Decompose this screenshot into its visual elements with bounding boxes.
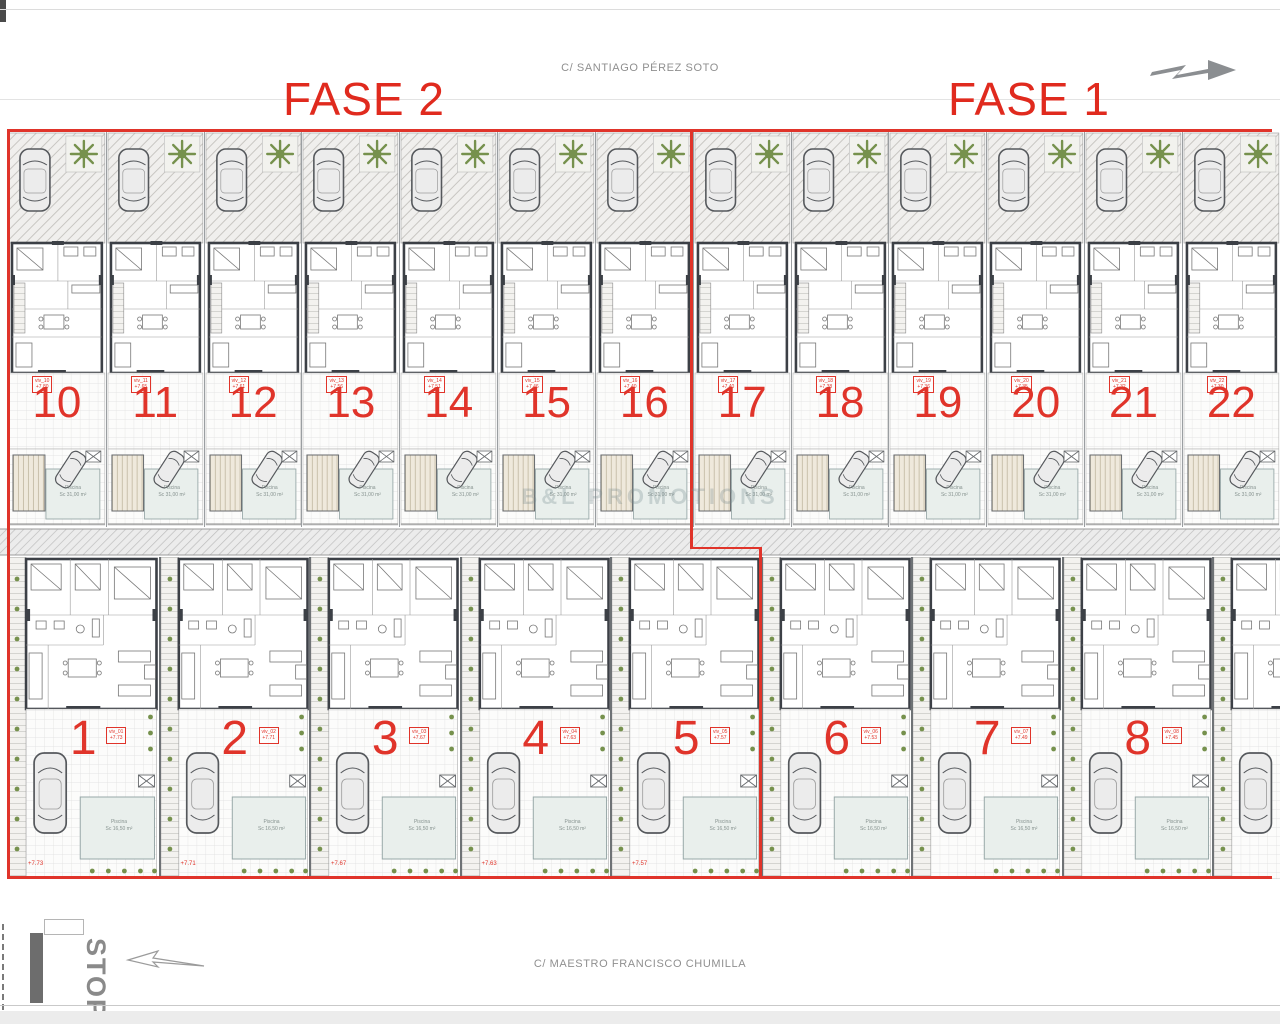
pergola-symbol-icon — [282, 451, 297, 462]
plot-number: 21 — [1085, 381, 1182, 425]
car-icon — [803, 149, 833, 211]
plot-unit-top: viv_10 +7.80 10 Piscina Sc 31,00 m² — [8, 131, 106, 527]
unit-tag-box: viv_04 +7.63 — [560, 727, 580, 744]
unit-floorplan-drawing — [8, 131, 106, 527]
pool-area: Sc 16,50 m² — [385, 826, 459, 833]
plot-unit-bottom: 5 viv_05 +7.57 Piscina Sc 16,50 m² +7.57 — [610, 557, 761, 879]
plot-unit-bottom: 1 viv_01 +7.73 Piscina Sc 16,50 m² +7.73 — [8, 557, 159, 879]
tree-icon — [71, 141, 97, 167]
pergola-symbol-icon — [673, 451, 688, 462]
road-dashed-line — [2, 924, 4, 1010]
pergola-symbol-icon — [1064, 451, 1079, 462]
plot-unit-top: viv_18 +7.38 18 Piscina Sc 31,00 m² — [791, 131, 889, 527]
car-icon — [314, 149, 344, 211]
pool-area: Sc 31,00 m² — [929, 492, 979, 499]
elevation-mark: +7.71 — [181, 861, 196, 867]
plot-number: 22 — [1183, 381, 1280, 425]
tree-icon — [169, 141, 195, 167]
plot-unit-bottom: 7 viv_07 +7.49 Piscina Sc 16,50 m² — [911, 557, 1062, 879]
unit-tag-box: viv_03 +7.67 — [409, 727, 429, 744]
plot-unit-bottom: 6 viv_06 +7.53 Piscina Sc 16,50 m² — [761, 557, 912, 879]
plot-unit-top: viv_17 +7.40 17 Piscina Sc 31,00 m² — [693, 131, 791, 527]
pergola-symbol-icon — [86, 451, 101, 462]
pool-label: Piscina Sc 16,50 m² — [536, 819, 610, 832]
car-icon — [939, 753, 971, 833]
plot-unit-top: viv_15 +7.46 15 Piscina Sc 31,00 m² — [497, 131, 595, 527]
unit-level: +7.73 — [109, 735, 123, 741]
car-icon — [638, 753, 670, 833]
plot-number: 17 — [694, 381, 791, 425]
plot-unit-top: viv_13 +7.56 13 Piscina Sc 31,00 m² — [301, 131, 399, 527]
unit-level: +7.71 — [262, 735, 276, 741]
plot-number: 12 — [205, 381, 302, 425]
plot-unit-bottom: 3 viv_03 +7.67 Piscina Sc 16,50 m² +7.67 — [309, 557, 460, 879]
bottom-margin-band — [0, 1011, 1280, 1024]
pergola-symbol-icon — [138, 775, 154, 787]
pergola-symbol-icon — [741, 775, 757, 787]
pergola — [13, 455, 45, 511]
unit-floorplan-drawing — [498, 131, 595, 527]
pool-label: Piscina Sc 16,50 m² — [82, 819, 156, 832]
unit-level: +7.67 — [412, 735, 426, 741]
pergola — [112, 455, 144, 511]
plot-number: 8 — [1064, 715, 1213, 763]
tree-icon — [365, 141, 391, 167]
unit-floorplan-drawing — [302, 131, 399, 527]
pool-area: Sc 31,00 m² — [245, 492, 295, 499]
phase-boundary-top — [8, 129, 1272, 132]
top-plot-row: viv_10 +7.80 10 Piscina Sc 31,00 m² — [8, 131, 1280, 527]
house-floorplan — [329, 559, 458, 710]
tree-icon — [1050, 141, 1076, 167]
plot-number: 20 — [987, 381, 1084, 425]
unit-tag-box: viv_01 +7.73 — [106, 727, 126, 744]
pool-label: Piscina Sc 31,00 m² — [929, 485, 979, 498]
house-floorplan — [479, 559, 608, 710]
pergola — [894, 455, 926, 511]
car-icon — [217, 149, 247, 211]
plot-unit-bottom: 8 viv_08 +7.45 Piscina Sc 16,50 m² — [1062, 557, 1213, 879]
house-floorplan — [630, 559, 759, 710]
pergola-symbol-icon — [1042, 775, 1058, 787]
pool-area: Sc 31,00 m² — [48, 492, 98, 499]
phase-boundary-left — [7, 129, 10, 879]
pool-label: Piscina Sc 31,00 m² — [1125, 485, 1175, 498]
unit-level: +7.57 — [713, 735, 727, 741]
stop-road-marking: STOP — [80, 938, 111, 1019]
phase-divider-jog — [690, 547, 762, 549]
unit-level: +7.49 — [1014, 735, 1028, 741]
pergola — [405, 455, 437, 511]
tree-icon — [1245, 141, 1271, 167]
unit-level: +7.45 — [1165, 735, 1179, 741]
curb-box — [44, 919, 84, 935]
unit-floorplan-drawing — [1085, 131, 1182, 527]
plot-unit-top: viv_21 +7.32 21 Piscina Sc 31,00 m² — [1084, 131, 1182, 527]
pergola-symbol-icon — [967, 451, 982, 462]
car-icon — [901, 149, 931, 211]
pergola-symbol-icon — [477, 451, 492, 462]
phase-divider-lower — [759, 547, 762, 879]
plot-number: 18 — [792, 381, 889, 425]
unit-floorplan-drawing — [400, 131, 497, 527]
pool-area: Sc 16,50 m² — [235, 826, 309, 833]
plot-unit-top: viv_14 +7.51 14 Piscina Sc 31,00 m² — [399, 131, 497, 527]
elevation-mark: +7.73 — [28, 861, 43, 867]
unit-tag-box: viv_08 +7.45 — [1162, 727, 1182, 744]
house-floorplan — [893, 241, 982, 374]
unit-tag-box: viv_02 +7.71 — [259, 727, 279, 744]
car-icon — [608, 149, 638, 211]
tree-icon — [1147, 141, 1173, 167]
unit-level: +7.53 — [864, 735, 878, 741]
tree-icon — [952, 141, 978, 167]
car-icon — [1240, 753, 1272, 833]
plot-number: 7 — [913, 715, 1062, 763]
pool-area: Sc 31,00 m² — [832, 492, 882, 499]
car-icon — [337, 753, 369, 833]
pool-area: Sc 16,50 m² — [1138, 826, 1212, 833]
house-floorplan — [306, 241, 395, 374]
house-floorplan — [796, 241, 885, 374]
plot-unit-top: viv_16 +7.40 16 Piscina Sc 31,00 m² — [595, 131, 693, 527]
unit-floorplan-drawing — [889, 131, 986, 527]
house-floorplan — [178, 559, 307, 710]
top-border-line — [0, 9, 1280, 10]
plot-number: 6 — [763, 715, 912, 763]
plot-unit-top: viv_22 +7.30 22 Piscina Sc 31,00 m² — [1182, 131, 1280, 527]
unit-floorplan-drawing — [205, 131, 302, 527]
unit-floorplan-drawing — [596, 131, 693, 527]
pergola-symbol-icon — [380, 451, 395, 462]
stop-line-bar — [30, 933, 43, 1003]
car-icon — [412, 149, 442, 211]
plot-unit-bottom: 4 viv_04 +7.63 Piscina Sc 16,50 m² +7.63 — [460, 557, 611, 879]
watermark: B&L PROMOTIONS — [470, 484, 830, 510]
car-icon — [999, 149, 1029, 211]
house-floorplan — [26, 559, 156, 710]
car-icon — [788, 753, 820, 833]
tree-icon — [267, 141, 293, 167]
unit-floorplan-drawing — [792, 131, 889, 527]
house-floorplan — [1187, 241, 1276, 374]
tree-icon — [854, 141, 880, 167]
plot-number: 2 — [161, 715, 310, 763]
phase-2-title: FASE 2 — [283, 72, 445, 126]
pergola-symbol-icon — [869, 451, 884, 462]
house-floorplan — [931, 559, 1060, 710]
pergola — [992, 455, 1024, 511]
pool-label: Piscina Sc 31,00 m² — [147, 485, 197, 498]
unit-tag-box: viv_06 +7.53 — [861, 727, 881, 744]
pool-label: Piscina Sc 31,00 m² — [342, 485, 392, 498]
pool-label: Piscina Sc 31,00 m² — [832, 485, 882, 498]
pergola-symbol-icon — [184, 451, 199, 462]
plot-unit-bottom: 2 viv_02 +7.71 Piscina Sc 16,50 m² +7.71 — [159, 557, 310, 879]
pergola-symbol-icon — [1192, 775, 1208, 787]
pool-area: Sc 16,50 m² — [536, 826, 610, 833]
pergola-symbol-icon — [575, 451, 590, 462]
house-floorplan — [780, 559, 909, 710]
pergola-symbol-icon — [1260, 451, 1275, 462]
unit-tag-box: viv_05 +7.57 — [710, 727, 730, 744]
plot-number: 1 — [8, 715, 159, 763]
unit-floorplan-drawing — [987, 131, 1084, 527]
elevation-mark: +7.57 — [632, 861, 647, 867]
elevation-mark: +7.63 — [482, 861, 497, 867]
plot-number: 14 — [400, 381, 497, 425]
plot-unit-top: viv_11 +7.65 11 Piscina Sc 31,00 m² — [106, 131, 204, 527]
pergola-symbol-icon — [289, 775, 305, 787]
plot-number: 10 — [8, 381, 106, 425]
unit-floorplan-drawing — [694, 131, 791, 527]
pool-label: Piscina Sc 16,50 m² — [1138, 819, 1212, 832]
plot-number: 16 — [596, 381, 693, 425]
house-floorplan — [209, 241, 298, 374]
plot-number: 15 — [498, 381, 595, 425]
pergola — [307, 455, 339, 511]
pergola-symbol-icon — [1162, 451, 1177, 462]
corner-mark — [0, 0, 6, 22]
elevation-mark: +7.67 — [331, 861, 346, 867]
pool-label: Piscina Sc 16,50 m² — [987, 819, 1061, 832]
car-icon — [487, 753, 519, 833]
car-icon — [186, 753, 218, 833]
car-icon — [1195, 149, 1225, 211]
pool-label: Piscina Sc 31,00 m² — [48, 485, 98, 498]
house-floorplan — [991, 241, 1080, 374]
pergola — [1188, 455, 1220, 511]
pool-label: Piscina Sc 31,00 m² — [1027, 485, 1077, 498]
unit-tag-box: viv_07 +7.49 — [1011, 727, 1031, 744]
bottom-plot-row: 1 viv_01 +7.73 Piscina Sc 16,50 m² +7.73 — [8, 557, 1280, 879]
pool-area: Sc 31,00 m² — [147, 492, 197, 499]
car-icon — [706, 149, 736, 211]
car-icon — [20, 149, 50, 211]
pergola-symbol-icon — [891, 775, 907, 787]
pool-area: Sc 31,00 m² — [1027, 492, 1077, 499]
pool-area: Sc 31,00 m² — [1223, 492, 1273, 499]
plot-number: 19 — [889, 381, 986, 425]
plot-number: 5 — [612, 715, 761, 763]
tree-icon — [756, 141, 782, 167]
pergola-symbol-icon — [771, 451, 786, 462]
pool-label: Piscina Sc 16,50 m² — [686, 819, 760, 832]
pool-area: Sc 16,50 m² — [82, 826, 156, 833]
pergola — [1090, 455, 1122, 511]
plot-unit-bottom: Piscina Sc 16,50 m² — [1212, 557, 1280, 879]
pool-area: Sc 31,00 m² — [342, 492, 392, 499]
tree-icon — [560, 141, 586, 167]
lane-arrow-icon — [122, 946, 212, 980]
house-floorplan — [600, 241, 689, 374]
pool-area: Sc 31,00 m² — [1125, 492, 1175, 499]
pool-area: Sc 16,50 m² — [686, 826, 760, 833]
house-floorplan — [12, 241, 102, 374]
unit-level: +7.63 — [563, 735, 577, 741]
pool-label: Piscina Sc 16,50 m² — [385, 819, 459, 832]
tree-icon — [463, 141, 489, 167]
house-floorplan — [404, 241, 493, 374]
north-arrow-icon — [1148, 48, 1238, 88]
house-floorplan — [502, 241, 591, 374]
tree-icon — [658, 141, 684, 167]
unit-floorplan-drawing — [1183, 131, 1280, 527]
house-floorplan — [1232, 559, 1280, 710]
house-floorplan — [1081, 559, 1210, 710]
pool-area: Sc 16,50 m² — [987, 826, 1061, 833]
car-icon — [1089, 753, 1121, 833]
car-icon — [1097, 149, 1127, 211]
pool-label: Piscina Sc 16,50 m² — [235, 819, 309, 832]
pool-area: Sc 16,50 m² — [837, 826, 911, 833]
house-floorplan — [1089, 241, 1178, 374]
pool-label: Piscina Sc 31,00 m² — [245, 485, 295, 498]
phase-boundary-bottom — [7, 876, 1272, 879]
house-floorplan — [698, 241, 787, 374]
car-icon — [34, 753, 66, 833]
house-floorplan — [111, 241, 200, 374]
car-icon — [119, 149, 149, 211]
bottom-margin-line — [0, 1005, 1280, 1006]
plot-number: 4 — [462, 715, 611, 763]
car-icon — [510, 149, 540, 211]
pergola-symbol-icon — [590, 775, 606, 787]
plot-number: 11 — [107, 381, 204, 425]
plot-number: 3 — [311, 715, 460, 763]
phase-1-title: FASE 1 — [948, 72, 1110, 126]
pool-label: Piscina Sc 31,00 m² — [1223, 485, 1273, 498]
unit-floorplan-drawing — [1214, 557, 1280, 879]
pergola-symbol-icon — [440, 775, 456, 787]
unit-floorplan-drawing — [107, 131, 204, 527]
walkway — [1214, 557, 1232, 879]
plot-unit-top: viv_20 +7.35 20 Piscina Sc 31,00 m² — [986, 131, 1084, 527]
site-plan: C/ SANTIAGO PÉREZ SOTO FASE 2 FASE 1 — [0, 0, 1280, 1024]
pool-label: Piscina Sc 16,50 m² — [837, 819, 911, 832]
plot-unit-top: viv_19 +7.36 19 Piscina Sc 31,00 m² — [888, 131, 986, 527]
pergola — [210, 455, 242, 511]
road-strip — [0, 527, 1280, 557]
plot-number: 13 — [302, 381, 399, 425]
plot-unit-top: viv_12 +7.61 12 Piscina Sc 31,00 m² — [204, 131, 302, 527]
